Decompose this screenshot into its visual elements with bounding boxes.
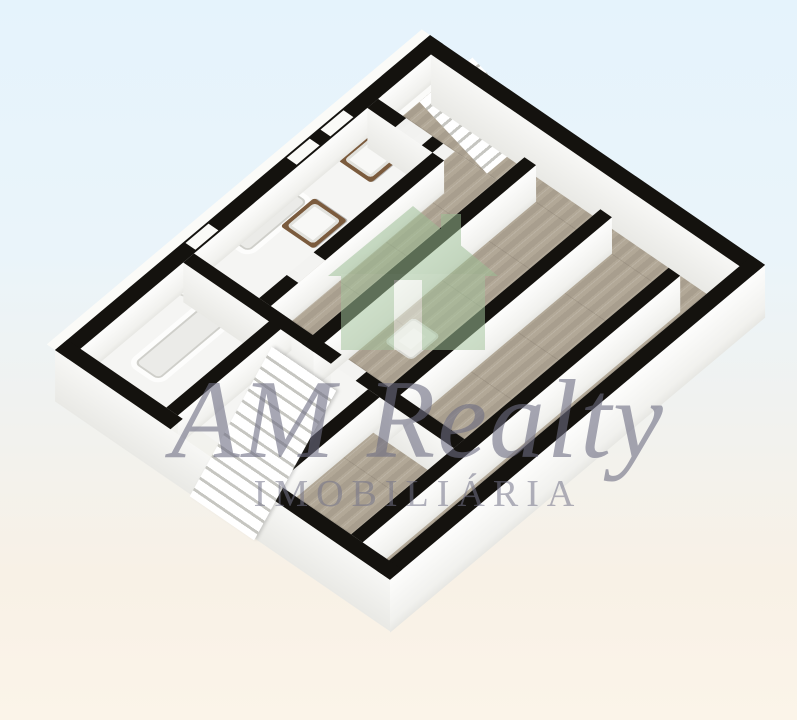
floorplan-render: AM Realty IMOBILIÁRIA	[0, 0, 797, 720]
logo-door	[394, 280, 422, 350]
logo-chimney	[441, 214, 461, 270]
house-logo-icon	[328, 206, 498, 350]
logo-roof	[328, 206, 498, 276]
